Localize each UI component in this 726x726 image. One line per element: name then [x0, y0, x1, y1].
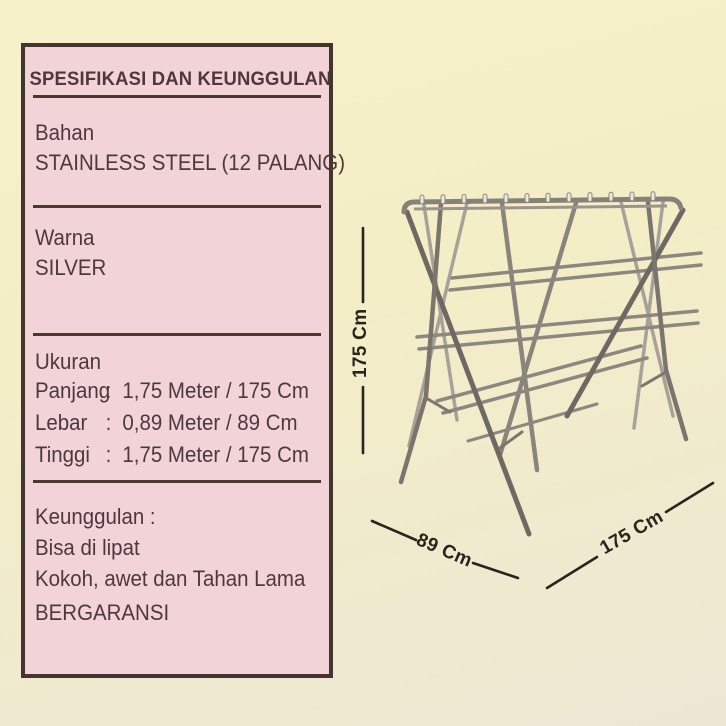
dimension-value: 1,75 Meter / 175 Cm — [122, 442, 309, 468]
dimension-separator: : — [106, 442, 123, 468]
keunggulan-item: Bisa di lipat — [35, 535, 308, 561]
keunggulan-item: Kokoh, awet dan Tahan Lama — [35, 566, 308, 592]
warna-label: Warna — [35, 225, 308, 251]
rack-top-rail — [404, 199, 681, 212]
dimension-name: Tinggi — [35, 442, 106, 468]
bahan-value: STAINLESS STEEL (12 PALANG) — [35, 150, 308, 176]
keunggulan-item: BERGARANSI — [35, 600, 308, 626]
ukuran-label: Ukuran — [35, 349, 308, 375]
dimension-name: Panjang — [35, 378, 106, 404]
spec-panel: SPESIFIKASI DAN KEUNGGULAN Bahan STAINLE… — [21, 43, 333, 678]
title-underline — [33, 95, 321, 98]
ukuran-row-lebar: Lebar : 0,89 Meter / 89 Cm — [35, 410, 308, 436]
section-divider — [33, 480, 321, 483]
height-dimension-label: 175 Cm — [350, 312, 372, 378]
section-divider — [33, 205, 321, 208]
warna-value: SILVER — [35, 255, 308, 281]
dimension-value: 0,89 Meter / 89 Cm — [122, 410, 297, 436]
infographic-canvas: SPESIFIKASI DAN KEUNGGULAN Bahan STAINLE… — [0, 0, 726, 726]
ukuran-row-tinggi: Tinggi : 1,75 Meter / 175 Cm — [35, 442, 308, 468]
drying-rack-photo — [350, 180, 726, 600]
section-divider — [33, 333, 321, 336]
ukuran-row-panjang: Panjang : 1,75 Meter / 175 Cm — [35, 378, 308, 404]
bahan-label: Bahan — [35, 120, 308, 146]
panel-title: SPESIFIKASI DAN KEUNGGULAN — [30, 69, 325, 91]
dimension-separator: : — [106, 378, 123, 404]
dimension-name: Lebar — [35, 410, 106, 436]
dimension-value: 1,75 Meter / 175 Cm — [122, 378, 309, 404]
rack-foot-braces — [426, 372, 666, 448]
dimension-separator: : — [106, 410, 123, 436]
keunggulan-label: Keunggulan : — [35, 504, 308, 530]
